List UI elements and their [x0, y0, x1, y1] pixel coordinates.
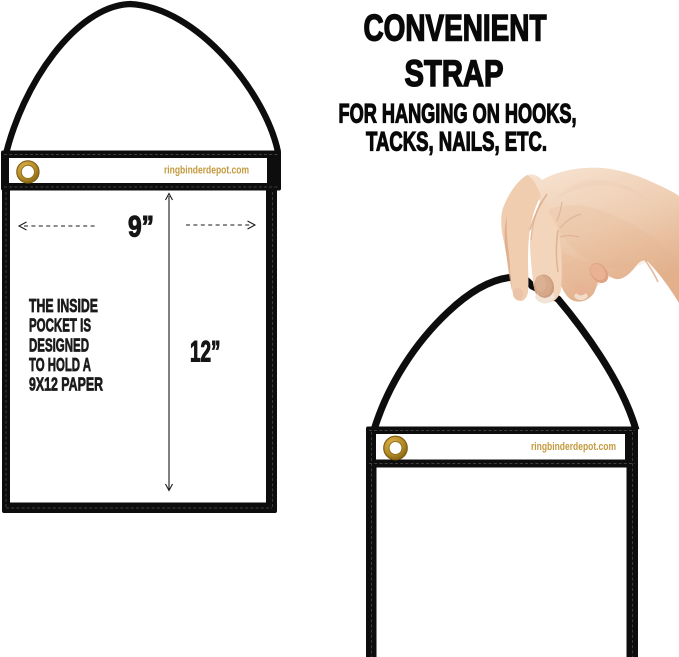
- svg-text:FOR HANGING ON HOOKS,: FOR HANGING ON HOOKS,: [339, 99, 577, 129]
- svg-text:CONVENIENT: CONVENIENT: [364, 7, 547, 49]
- svg-text:TACKS, NAILS, ETC.: TACKS, NAILS, ETC.: [366, 127, 547, 157]
- svg-text:ringbinderdepot.com: ringbinderdepot.com: [164, 165, 249, 177]
- svg-text:ringbinderdepot.com: ringbinderdepot.com: [531, 441, 616, 453]
- svg-text:9X12 PAPER: 9X12 PAPER: [29, 374, 103, 395]
- svg-text:POCKET IS: POCKET IS: [29, 315, 91, 336]
- svg-text:TO HOLD A: TO HOLD A: [29, 354, 91, 375]
- svg-text:THE INSIDE: THE INSIDE: [29, 295, 98, 316]
- svg-text:STRAP: STRAP: [405, 52, 504, 94]
- svg-text:12”: 12”: [190, 336, 221, 369]
- svg-text:9”: 9”: [128, 211, 154, 244]
- svg-text:DESIGNED: DESIGNED: [29, 335, 89, 356]
